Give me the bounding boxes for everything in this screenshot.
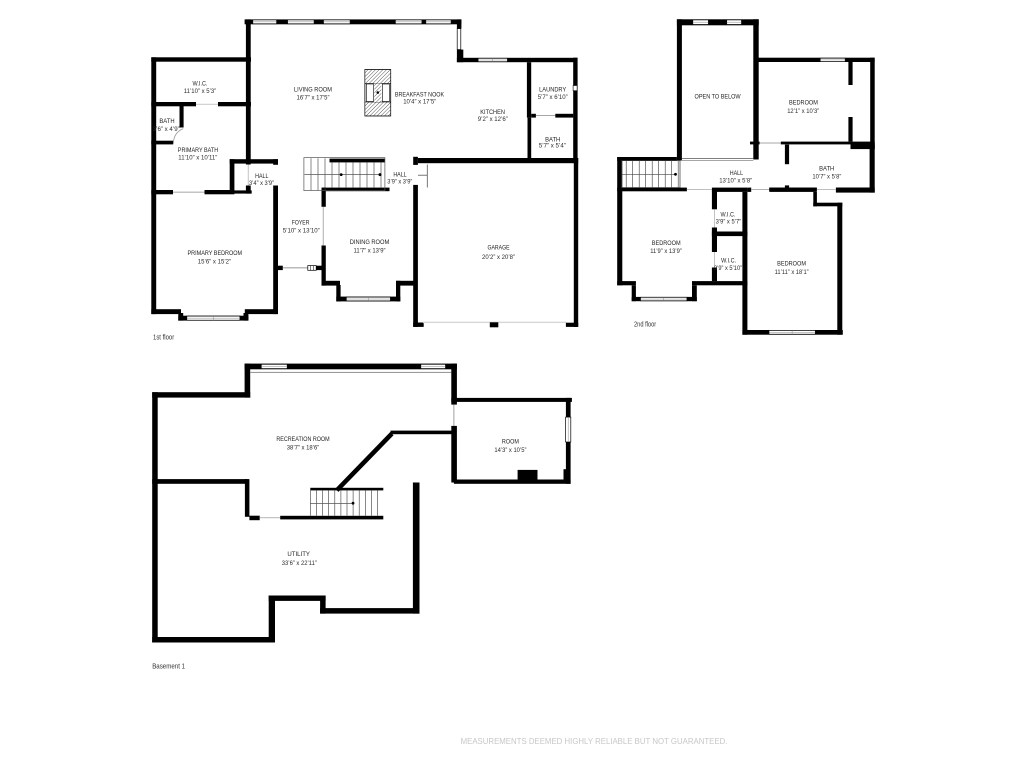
svg-text:10’4” x 17’5”: 10’4” x 17’5”: [403, 99, 436, 106]
svg-text:GARAGE: GARAGE: [487, 245, 509, 252]
svg-text:11’10” x 10’11”: 11’10” x 10’11”: [178, 155, 217, 162]
svg-text:14’3” x 10’5”: 14’3” x 10’5”: [494, 447, 526, 454]
svg-text:10’7” x 5’8”: 10’7” x 5’8”: [812, 173, 841, 180]
svg-text:11’9” x 13’9”: 11’9” x 13’9”: [650, 248, 682, 255]
svg-text:16’7” x 17’5”: 16’7” x 17’5”: [297, 94, 330, 101]
svg-text:9’2” x 12’6”: 9’2” x 12’6”: [478, 116, 508, 123]
svg-text:OPEN TO BELOW: OPEN TO BELOW: [695, 94, 742, 101]
svg-text:BEDROOM: BEDROOM: [777, 261, 806, 268]
svg-text:11’7” x 13’9”: 11’7” x 13’9”: [354, 248, 386, 255]
svg-text:FOYER: FOYER: [292, 220, 310, 227]
svg-text:UTILITY: UTILITY: [287, 551, 310, 558]
svg-text:LIVING ROOM: LIVING ROOM: [294, 86, 332, 93]
svg-text:W.I.C.: W.I.C.: [721, 258, 736, 265]
svg-text:BEDROOM: BEDROOM: [789, 99, 818, 106]
svg-text:PRIMARY BATH: PRIMARY BATH: [178, 147, 219, 154]
svg-text:33’6” x 22’11”: 33’6” x 22’11”: [282, 560, 317, 567]
svg-text:3’9” x 5’7”: 3’9” x 5’7”: [716, 219, 742, 226]
svg-text:20’2” x 20’8”: 20’2” x 20’8”: [482, 254, 515, 261]
svg-text:MEASUREMENTS DEEMED HIGHLY REL: MEASUREMENTS DEEMED HIGHLY RELIABLE BUT …: [461, 736, 728, 746]
svg-text:3’9” x 5’10”: 3’9” x 5’10”: [714, 265, 742, 272]
svg-text:BREAKFAST NOOK: BREAKFAST NOOK: [395, 92, 445, 99]
svg-text:11’11” x 18’1”: 11’11” x 18’1”: [775, 269, 809, 276]
svg-text:5’7” x 6’10”: 5’7” x 6’10”: [538, 94, 568, 101]
svg-text:11’10” x 5’3”: 11’10” x 5’3”: [184, 88, 217, 95]
svg-text:BATH: BATH: [819, 166, 835, 173]
svg-text:38’7” x 18’6”: 38’7” x 18’6”: [287, 445, 320, 452]
svg-text:5’10” x 13’10”: 5’10” x 13’10”: [283, 228, 320, 235]
svg-text:Basement 1: Basement 1: [152, 662, 185, 671]
svg-text:2nd floor: 2nd floor: [634, 319, 657, 328]
svg-text:BATH: BATH: [159, 118, 175, 125]
svg-text:BEDROOM: BEDROOM: [652, 240, 681, 247]
svg-text:12’1” x 10’3”: 12’1” x 10’3”: [787, 108, 819, 115]
svg-text:DINING ROOM: DINING ROOM: [350, 239, 390, 246]
svg-text:ROOM: ROOM: [502, 439, 519, 446]
svg-text:13’10” x 5’8”: 13’10” x 5’8”: [719, 178, 752, 185]
svg-text:3’6” x 4’9”: 3’6” x 4’9”: [153, 126, 180, 133]
svg-text:3’9” x 3’9”: 3’9” x 3’9”: [387, 178, 412, 185]
svg-text:HALL: HALL: [255, 173, 269, 180]
svg-text:5’7” x 5’4”: 5’7” x 5’4”: [539, 143, 566, 150]
svg-text:LAUNDRY: LAUNDRY: [539, 87, 567, 94]
svg-text:PRIMARY BEDROOM: PRIMARY BEDROOM: [188, 250, 243, 257]
svg-text:1st floor: 1st floor: [153, 332, 175, 341]
svg-text:W.I.C.: W.I.C.: [193, 81, 208, 88]
svg-text:RECREATION ROOM: RECREATION ROOM: [276, 436, 329, 443]
svg-text:HALL: HALL: [730, 170, 744, 177]
svg-text:3’4” x 3’9”: 3’4” x 3’9”: [249, 180, 274, 187]
svg-text:W.I.C.: W.I.C.: [721, 212, 736, 219]
svg-text:15’6” x 15’2”: 15’6” x 15’2”: [198, 259, 231, 266]
